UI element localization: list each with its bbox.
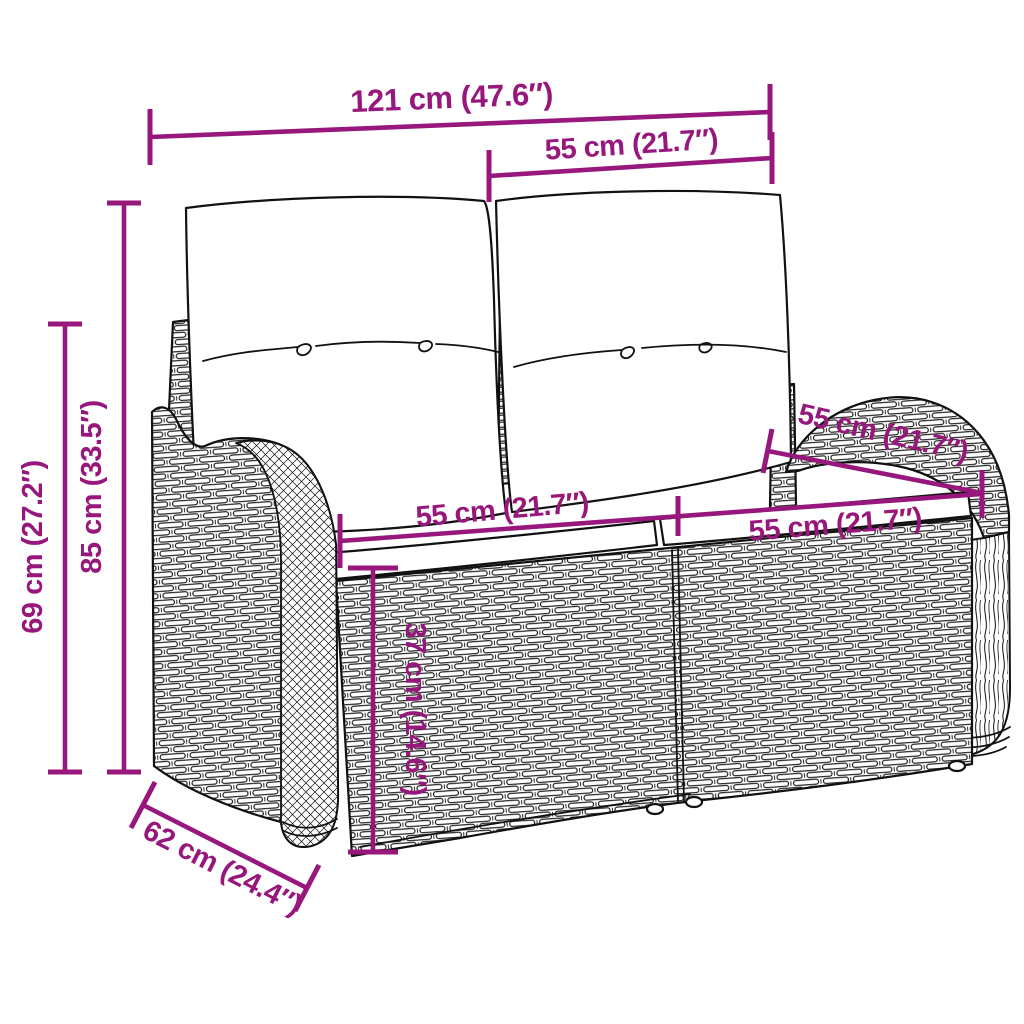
base-foot bbox=[949, 761, 965, 771]
dim-total-height: 85 cm (33.5″) bbox=[76, 203, 141, 772]
base-foot bbox=[686, 797, 702, 807]
dim-total-width-label: 121 cm (47.6″) bbox=[350, 76, 554, 119]
dim-total-depth-label: 62 cm (24.4″) bbox=[138, 814, 307, 921]
diagram-canvas: 121 cm (47.6″) 55 cm (21.7″) 85 cm (33.5… bbox=[0, 0, 1024, 1024]
dim-seat-height-label: 37 cm (14.6″) bbox=[399, 622, 431, 795]
dim-back-cushion-width: 55 cm (21.7″) bbox=[489, 123, 772, 202]
dim-armrest-height: 69 cm (27.2″) bbox=[17, 324, 82, 772]
dim-total-height-label: 85 cm (33.5″) bbox=[76, 400, 108, 573]
dim-back-cushion-width-label: 55 cm (21.7″) bbox=[544, 123, 719, 166]
dim-armrest-height-label: 69 cm (27.2″) bbox=[17, 460, 49, 633]
dimension-diagram: 121 cm (47.6″) 55 cm (21.7″) 85 cm (33.5… bbox=[0, 0, 1024, 1024]
base-foot bbox=[647, 804, 663, 814]
back-cushion-right bbox=[496, 191, 791, 512]
